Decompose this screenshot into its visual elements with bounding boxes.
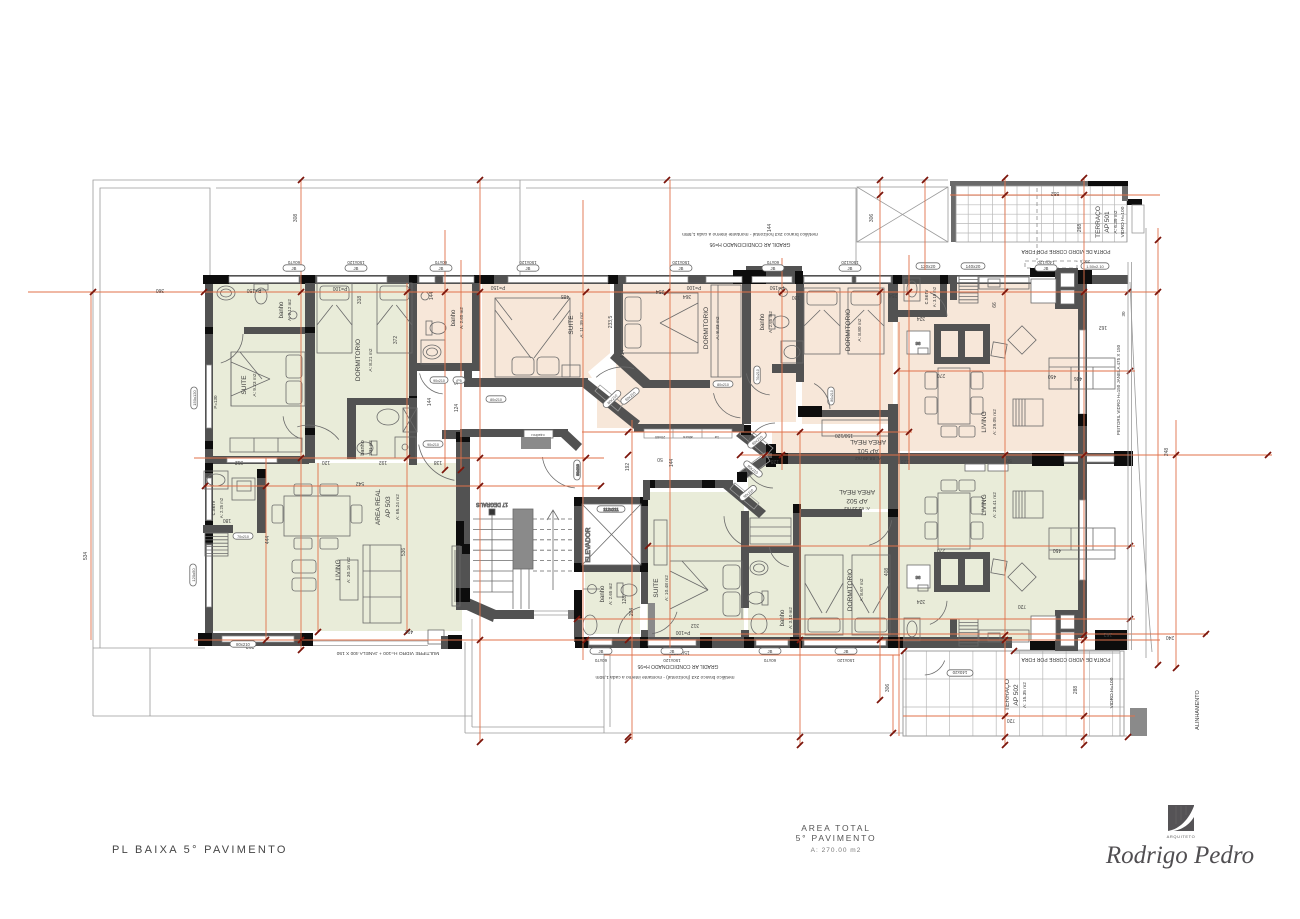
- svg-text:A: 62.22 m2: A: 62.22 m2: [844, 505, 870, 511]
- svg-text:A: 2.65 m2: A: 2.65 m2: [459, 307, 464, 329]
- svg-text:270: 270: [937, 372, 946, 378]
- svg-text:124: 124: [454, 404, 460, 413]
- svg-text:P=100: P=100: [686, 284, 701, 290]
- svg-text:444: 444: [265, 536, 271, 545]
- svg-text:banho: banho: [279, 301, 285, 318]
- svg-text:128: 128: [622, 596, 628, 605]
- svg-text:A: 2.12 m2: A: 2.12 m2: [287, 299, 292, 321]
- svg-text:A: 88.49 m2: A: 88.49 m2: [855, 455, 881, 461]
- svg-text:ELEVADOR: ELEVADOR: [585, 527, 592, 562]
- svg-text:TERRAÇO: TERRAÇO: [1095, 206, 1102, 238]
- svg-text:LIVING: LIVING: [981, 411, 988, 432]
- svg-text:roupeiro: roupeiro: [531, 433, 544, 437]
- svg-text:banho: banho: [780, 609, 786, 626]
- svg-text:Rodrigo Pedro: Rodrigo Pedro: [1105, 842, 1254, 869]
- svg-text:A: 29.41 m2: A: 29.41 m2: [992, 492, 998, 518]
- svg-text:AREA REAL: AREA REAL: [375, 489, 382, 526]
- svg-text:192: 192: [379, 459, 388, 465]
- svg-text:A: 8.80 m2: A: 8.80 m2: [857, 318, 863, 342]
- svg-text:364: 364: [683, 293, 692, 299]
- svg-text:banho: banho: [760, 313, 766, 330]
- svg-text:290,5: 290,5: [1079, 259, 1090, 264]
- svg-text:60x70: 60x70: [434, 260, 447, 265]
- svg-text:SUITE: SUITE: [241, 375, 248, 395]
- svg-text:192: 192: [625, 463, 631, 472]
- svg-text:metálico branco 2x3 (horizonta: metálico branco 2x3 (horizontal) - monta…: [596, 674, 735, 680]
- svg-text:LIVING: LIVING: [335, 559, 342, 580]
- svg-text:A: 10.48 m2: A: 10.48 m2: [664, 575, 670, 601]
- svg-text:banho: banho: [600, 585, 606, 602]
- svg-text:140x120: 140x120: [1037, 260, 1055, 265]
- svg-text:SUITE: SUITE: [568, 315, 575, 335]
- svg-text:60x70: 60x70: [594, 658, 607, 663]
- svg-text:30: 30: [1121, 311, 1126, 317]
- svg-text:144: 144: [429, 292, 435, 301]
- svg-text:140x20: 140x20: [952, 670, 967, 675]
- svg-text:96: 96: [915, 575, 921, 580]
- svg-text:120: 120: [322, 459, 331, 465]
- svg-text:240: 240: [1166, 634, 1175, 640]
- svg-text:140x20: 140x20: [966, 264, 981, 269]
- svg-text:AREA TOTAL: AREA TOTAL: [801, 823, 871, 833]
- svg-text:138: 138: [434, 459, 443, 465]
- svg-text:150x120: 150x120: [663, 658, 681, 663]
- svg-text:GRADIL AR CONDICIONADO H=95: GRADIL AR CONDICIONADO H=95: [637, 663, 718, 669]
- svg-text:120x20: 120x20: [921, 264, 936, 269]
- svg-text:720: 720: [1007, 717, 1016, 723]
- svg-text:P=150: P=150: [769, 284, 784, 290]
- svg-text:DORMITORIO: DORMITORIO: [355, 339, 362, 381]
- svg-text:A: 2.65 m2: A: 2.65 m2: [768, 311, 773, 333]
- svg-text:162: 162: [1104, 631, 1113, 637]
- svg-text:204: 204: [629, 608, 635, 617]
- svg-text:288: 288: [1073, 686, 1079, 695]
- svg-text:JB: JB: [768, 649, 773, 654]
- svg-text:A: 9.23 m2: A: 9.23 m2: [252, 373, 258, 397]
- svg-text:144: 144: [669, 459, 675, 468]
- svg-text:324: 324: [917, 598, 926, 604]
- svg-text:306: 306: [869, 214, 875, 223]
- svg-text:JB: JB: [848, 266, 853, 271]
- svg-text:50: 50: [657, 456, 663, 462]
- svg-text:150/120: 150/120: [835, 432, 853, 438]
- svg-text:66: 66: [992, 302, 998, 308]
- svg-text:JB: JB: [771, 266, 776, 271]
- svg-text:90x210: 90x210: [427, 443, 439, 447]
- svg-text:metálico branco 2x3 horizontal: metálico branco 2x3 horizontal - montant…: [682, 231, 818, 237]
- svg-text:JB: JB: [354, 266, 359, 271]
- svg-text:ALINHAMENTO: ALINHAMENTO: [1195, 689, 1201, 729]
- svg-text:80x210: 80x210: [830, 390, 834, 402]
- svg-text:ARQUITETO: ARQUITETO: [1167, 834, 1196, 839]
- svg-text:60x70: 60x70: [763, 658, 776, 663]
- svg-text:720: 720: [1018, 603, 1027, 609]
- svg-text:112x211: 112x211: [603, 507, 619, 512]
- svg-text:DORMITORIO: DORMITORIO: [703, 307, 710, 349]
- svg-text:GRADIL AR CONDICIONADO H=95: GRADIL AR CONDICIONADO H=95: [709, 241, 790, 247]
- svg-text:60x70: 60x70: [287, 260, 300, 265]
- svg-text:PORTA DE VIDRO CORRE POR FORA: PORTA DE VIDRO CORRE POR FORA: [1021, 656, 1111, 662]
- svg-text:banho: banho: [451, 309, 457, 326]
- svg-text:70x210: 70x210: [237, 535, 249, 539]
- svg-text:AP 501: AP 501: [857, 447, 879, 454]
- svg-text:60x70: 60x70: [766, 260, 779, 265]
- svg-text:A: 2.25 m2: A: 2.25 m2: [219, 497, 224, 518]
- svg-text:A: 2.65 m2: A: 2.65 m2: [608, 583, 613, 605]
- svg-text:JB: JB: [439, 266, 444, 271]
- svg-text:128: 128: [901, 458, 910, 464]
- svg-text:JB: JB: [292, 266, 297, 271]
- svg-text:534: 534: [83, 552, 89, 561]
- svg-text:552: 552: [1051, 190, 1060, 196]
- svg-text:DORMITORIO: DORMITORIO: [847, 569, 854, 611]
- svg-text:372: 372: [393, 336, 399, 345]
- svg-text:c.serv: c.serv: [924, 289, 930, 304]
- svg-text:AREA REAL: AREA REAL: [850, 438, 887, 445]
- svg-text:270: 270: [937, 547, 946, 553]
- svg-text:254: 254: [889, 292, 898, 298]
- svg-text:JB: JB: [599, 649, 604, 654]
- svg-text:268: 268: [1077, 224, 1083, 233]
- svg-text:80x210: 80x210: [576, 464, 580, 476]
- svg-text:20x60: 20x60: [655, 435, 665, 439]
- svg-text:318: 318: [357, 296, 363, 305]
- svg-text:248: 248: [1164, 448, 1170, 457]
- svg-text:A: 30.16 m2: A: 30.16 m2: [346, 557, 352, 583]
- svg-text:P=130: P=130: [213, 395, 218, 409]
- svg-text:308: 308: [293, 214, 299, 223]
- svg-text:P=100: P=100: [675, 629, 690, 635]
- svg-text:VIDRO H=100: VIDRO H=100: [1109, 677, 1115, 708]
- svg-text:485: 485: [561, 293, 570, 299]
- svg-text:312: 312: [691, 622, 700, 628]
- svg-text:408: 408: [884, 568, 890, 577]
- svg-text:492: 492: [405, 628, 414, 634]
- svg-text:A: 29.05 m2: A: 29.05 m2: [992, 409, 998, 435]
- svg-text:JB: JB: [670, 649, 675, 654]
- svg-text:150x120: 150x120: [192, 390, 197, 406]
- svg-text:144: 144: [767, 224, 773, 233]
- svg-text:120x50: 120x50: [191, 568, 196, 582]
- svg-text:306: 306: [885, 684, 891, 693]
- svg-text:A: 8.33 m2: A: 8.33 m2: [715, 316, 721, 340]
- svg-text:150x120: 150x120: [347, 260, 365, 265]
- svg-text:254: 254: [656, 288, 665, 294]
- svg-text:AP 503: AP 503: [385, 496, 392, 518]
- svg-text:JB: JB: [526, 266, 531, 271]
- svg-text:P=100: P=100: [332, 285, 347, 291]
- svg-text:144: 144: [427, 398, 433, 407]
- svg-text:80x210: 80x210: [236, 642, 250, 647]
- svg-text:A: 15.35 m2: A: 15.35 m2: [1022, 682, 1028, 708]
- svg-text:414: 414: [620, 350, 626, 359]
- svg-text:80x210: 80x210: [717, 383, 729, 387]
- svg-text:360: 360: [156, 287, 165, 293]
- svg-text:JB: JB: [679, 266, 684, 271]
- svg-text:c.serv: c.serv: [211, 500, 217, 515]
- svg-text:AP 502: AP 502: [1013, 684, 1020, 706]
- svg-text:A: 8.67 m2: A: 8.67 m2: [859, 578, 865, 602]
- svg-text:A: 3.19 m2: A: 3.19 m2: [932, 286, 937, 307]
- svg-text:2.31 m2: 2.31 m2: [368, 440, 373, 456]
- svg-text:banho: banho: [360, 440, 366, 455]
- svg-text:LIVING: LIVING: [981, 494, 988, 515]
- svg-text:DORMITORIO: DORMITORIO: [845, 309, 852, 351]
- svg-text:128: 128: [771, 458, 780, 464]
- svg-text:PL BAIXA 5° PAVIMENTO: PL BAIXA 5° PAVIMENTO: [112, 844, 288, 856]
- svg-text:MULTIPRE VIDRO H=100 + JANELA: MULTIPRE VIDRO H=100 + JANELA 400 X 150: [336, 650, 439, 656]
- svg-text:150x120: 150x120: [837, 658, 855, 663]
- svg-text:A: 270.00 m2: A: 270.00 m2: [811, 847, 862, 854]
- svg-text:AP 501: AP 501: [1104, 211, 1111, 233]
- svg-text:JB: JB: [1044, 266, 1049, 271]
- svg-text:A: 11.39 m2: A: 11.39 m2: [579, 312, 585, 338]
- svg-text:A: 65.24 m2: A: 65.24 m2: [395, 494, 401, 520]
- svg-text:PEITORIL VIDRO H=150 JANELA 47: PEITORIL VIDRO H=150 JANELA 475 X 150: [1116, 344, 1121, 435]
- svg-text:70x210: 70x210: [756, 369, 760, 381]
- svg-text:P=150: P=150: [246, 287, 261, 293]
- svg-text:5° PAVIMENTO: 5° PAVIMENTO: [796, 833, 877, 843]
- svg-text:324: 324: [917, 315, 926, 321]
- svg-text:233,5: 233,5: [608, 316, 614, 329]
- svg-text:80x210: 80x210: [490, 398, 502, 402]
- svg-text:A: 6.39 m2: A: 6.39 m2: [1113, 210, 1119, 234]
- svg-text:162: 162: [1099, 324, 1108, 330]
- svg-text:150x120: 150x120: [672, 260, 690, 265]
- svg-text:A: 3.10 m2: A: 3.10 m2: [788, 607, 793, 629]
- svg-text:450: 450: [1053, 547, 1062, 553]
- svg-text:150x120: 150x120: [519, 260, 537, 265]
- svg-text:536: 536: [401, 548, 407, 557]
- svg-text:AREA REAL: AREA REAL: [839, 488, 876, 495]
- svg-text:130: 130: [792, 294, 801, 300]
- svg-text:altura: altura: [682, 435, 692, 439]
- svg-text:VIDRO H=100: VIDRO H=100: [1120, 206, 1126, 237]
- svg-text:486: 486: [1074, 375, 1083, 381]
- svg-text:A: 8.21 m2: A: 8.21 m2: [368, 348, 374, 372]
- svg-text:312: 312: [235, 459, 244, 465]
- svg-text:P=150: P=150: [490, 284, 505, 290]
- svg-text:450: 450: [1048, 373, 1057, 379]
- svg-text:(P5: (P5: [456, 379, 462, 383]
- svg-text:JB: JB: [844, 649, 849, 654]
- svg-text:50: 50: [1006, 457, 1012, 463]
- svg-text:150x120: 150x120: [841, 260, 859, 265]
- svg-text:PORTA DE VIDRO CORRE POR FORA: PORTA DE VIDRO CORRE POR FORA: [1021, 248, 1111, 254]
- svg-text:90x210: 90x210: [433, 379, 445, 383]
- svg-text:AP 502: AP 502: [846, 497, 868, 504]
- svg-text:96: 96: [915, 341, 921, 346]
- svg-text:542: 542: [356, 480, 365, 486]
- svg-text:SUITE: SUITE: [653, 578, 660, 598]
